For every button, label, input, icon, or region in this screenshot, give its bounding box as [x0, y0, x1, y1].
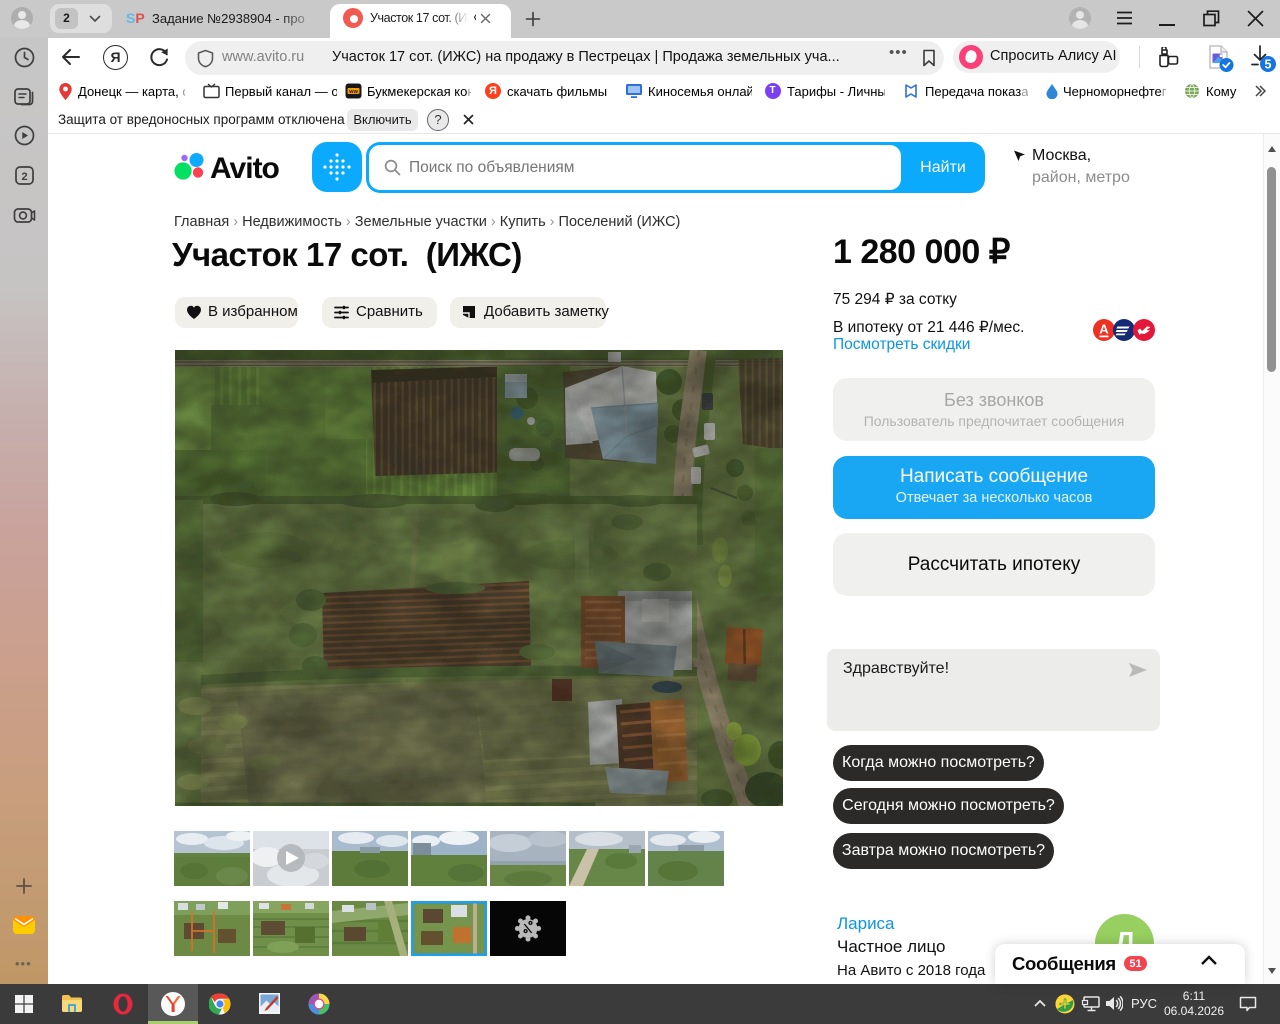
svg-text:А: А — [1099, 322, 1109, 337]
svg-text:WW: WW — [349, 89, 358, 94]
svg-text:5: 5 — [1265, 58, 1272, 72]
svg-text:2: 2 — [21, 171, 27, 183]
svg-text:Avito: Avito — [210, 152, 280, 184]
